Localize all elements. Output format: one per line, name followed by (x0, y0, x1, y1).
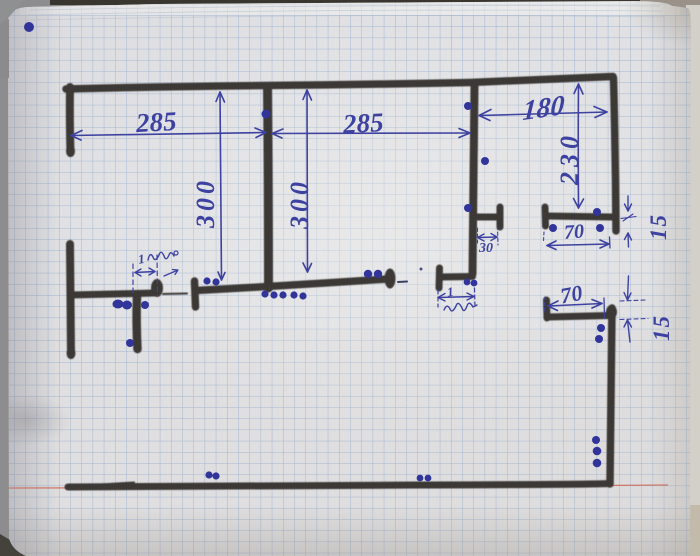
svg-text:180: 180 (522, 90, 566, 127)
svg-text:300: 300 (191, 177, 220, 229)
svg-text:70: 70 (558, 280, 584, 308)
svg-text:30: 30 (478, 241, 493, 256)
svg-text:15: 15 (646, 213, 671, 240)
svg-text:70: 70 (563, 220, 584, 243)
svg-text:230: 230 (555, 131, 584, 186)
svg-text:15: 15 (649, 314, 674, 341)
svg-text:285: 285 (134, 106, 177, 138)
svg-text:285: 285 (341, 107, 384, 139)
svg-text:300: 300 (285, 178, 314, 230)
